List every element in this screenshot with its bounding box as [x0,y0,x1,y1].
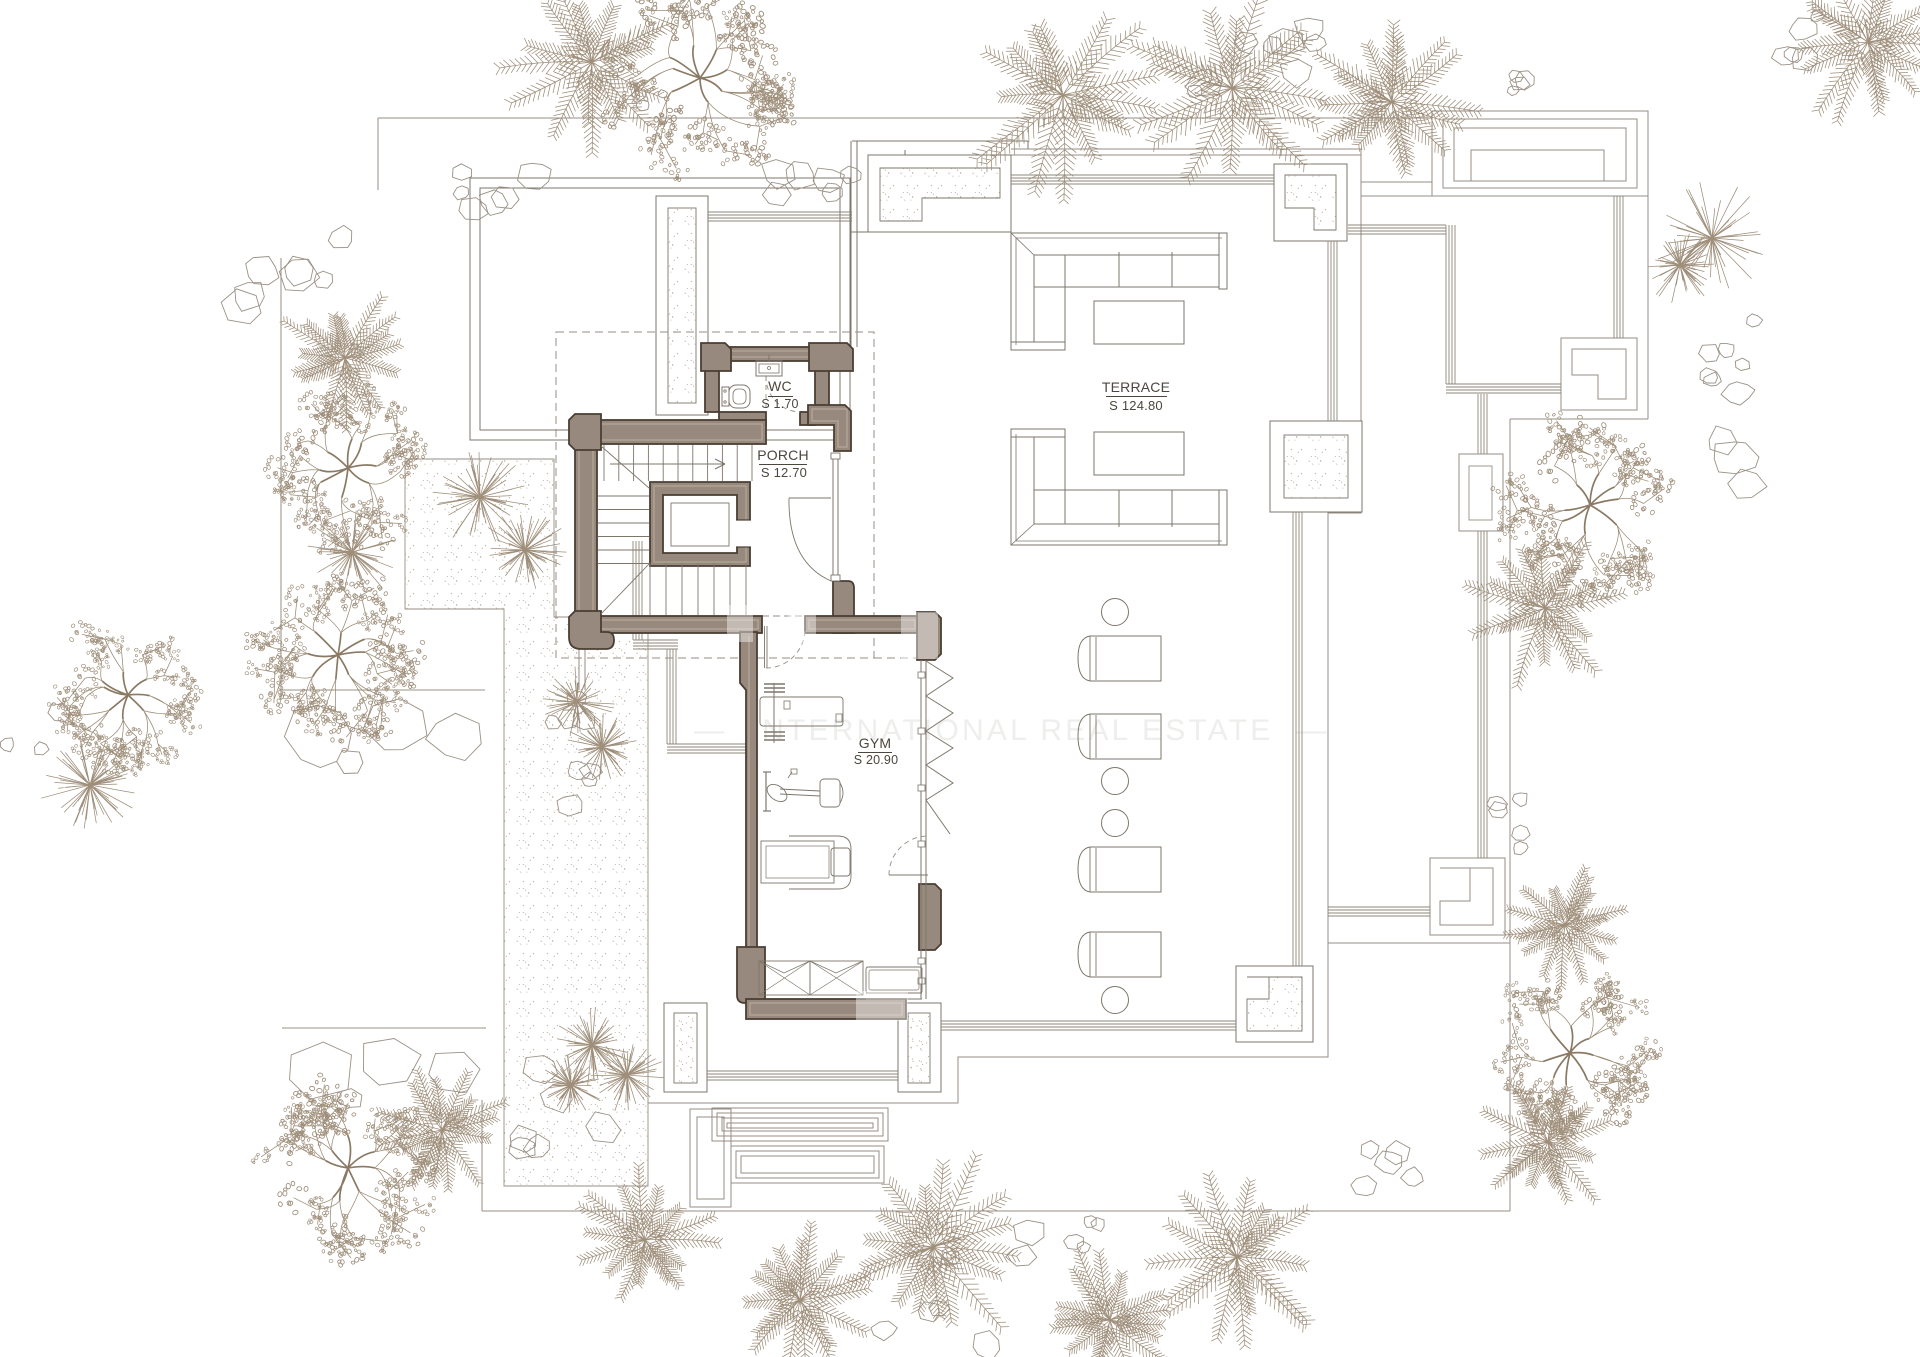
svg-text:WC: WC [768,378,792,394]
svg-text:S 124.80: S 124.80 [1109,398,1163,413]
svg-text:TERRACE: TERRACE [1102,379,1170,395]
svg-text:S 12.70: S 12.70 [761,465,807,480]
svg-text:GYM: GYM [859,735,892,751]
svg-text:S 1.70: S 1.70 [761,397,798,411]
svg-text:S 20.90: S 20.90 [854,753,899,767]
svg-text:— INTERNATIONAL REAL ESTATE: — INTERNATIONAL REAL ESTATE — [694,714,1329,747]
svg-text:PORCH: PORCH [757,447,809,463]
